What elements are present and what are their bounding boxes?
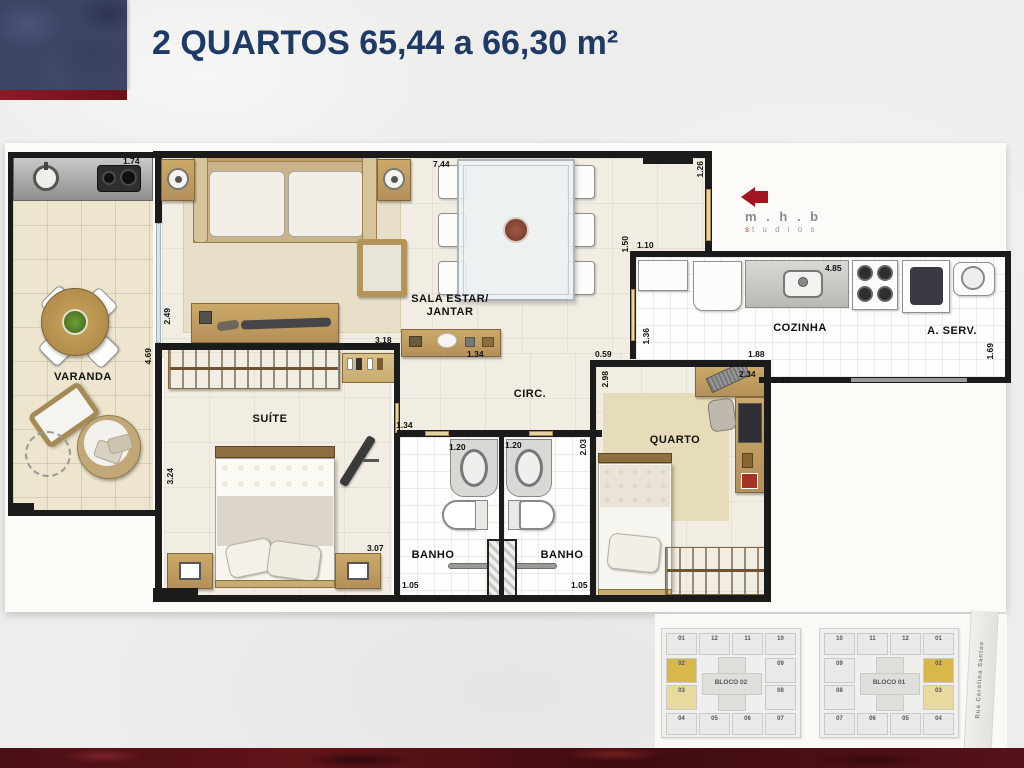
dim: 1.34 (467, 349, 484, 359)
decor-vase-icon (437, 333, 457, 348)
planter-outline-icon (25, 431, 71, 477)
decorative-red-strip (0, 90, 127, 100)
table-plant-icon (62, 309, 88, 335)
washer-drum (910, 267, 943, 305)
drain-icon (798, 277, 808, 287)
room-label-sala-1: SALA ESTAR/ (395, 293, 505, 305)
dim: 1.50 (620, 236, 630, 253)
unit-cell: 11 (732, 633, 763, 655)
service-window (851, 378, 967, 382)
shelf-item-red (741, 473, 758, 489)
dim: 1.05 (571, 580, 588, 590)
block-label: BLOCO 01 (820, 679, 958, 686)
dim: 2.97 (773, 375, 790, 385)
decorative-navy-square (0, 0, 127, 90)
wall (590, 365, 596, 600)
dim: 1.36 (641, 328, 651, 345)
logo-tag-rest: t u d i o s (752, 225, 817, 234)
room-label-varanda: VARANDA (33, 371, 133, 383)
dim: 1.20 (449, 442, 466, 452)
unit-cell: 03 (666, 685, 697, 710)
glass-door (156, 223, 161, 343)
shoe-icon (367, 358, 373, 370)
monitor-icon (738, 403, 762, 443)
page-title: 2 QUARTOS 65,44 a 66,30 m² (152, 24, 618, 63)
wall (394, 343, 400, 602)
wall (630, 251, 1011, 257)
unit-cell: 12 (890, 633, 921, 655)
decor-box (409, 336, 422, 347)
dim: 2.98 (600, 371, 610, 388)
dim: 2.03 (578, 439, 588, 456)
entry-arrow-icon (741, 187, 755, 207)
dim: 1.20 (505, 440, 522, 450)
dim: 3.07 (367, 543, 384, 553)
unit-cell: 07 (824, 713, 855, 735)
wall (155, 343, 162, 602)
nightstand-lamp (179, 562, 201, 580)
decor-box (465, 337, 475, 347)
dim: 7.44 (433, 159, 450, 169)
logo-tag-first: s (745, 225, 752, 234)
bed-headboard (598, 453, 672, 463)
unit-cell: 12 (699, 633, 730, 655)
toilet-tank (475, 500, 488, 530)
decor-box (482, 337, 494, 347)
tub-basin (961, 266, 985, 290)
dim: 1.34 (396, 420, 413, 430)
unit-cell: 05 (699, 713, 730, 735)
room-label-circ: CIRC. (495, 388, 565, 400)
dim: 4.69 (143, 348, 153, 365)
grill-burner-icon (102, 171, 116, 185)
key-plan-plates: 011211100405060702030908BLOCO 0210111201… (655, 614, 1007, 756)
wardrobe-rod (667, 569, 765, 572)
room-label-banho1: BANHO (403, 549, 463, 561)
sofa-arm (193, 155, 208, 243)
wall (8, 503, 34, 516)
footer-decorative-bar (0, 748, 1024, 768)
dim: 1.74 (123, 156, 140, 166)
dim: 3.24 (165, 468, 175, 485)
dim: 1.05 (402, 580, 419, 590)
room-label-suite: SUÍTE (220, 413, 320, 425)
room-label-cozinha: COZINHA (745, 322, 855, 334)
nightstand-lamp (347, 562, 369, 580)
unit-cell: 06 (857, 713, 888, 735)
wall (499, 437, 504, 595)
room-label-aserv: A. SERV. (907, 325, 997, 337)
dim: 1.88 (748, 349, 765, 359)
unit-cell: 08 (824, 685, 855, 710)
shelf-item (742, 453, 753, 468)
wall (590, 360, 770, 367)
faucet-icon (44, 162, 48, 170)
dim: 2.34 (739, 369, 756, 379)
pillow-icon (606, 532, 661, 573)
shoe-icon (356, 358, 362, 370)
closet-rod (170, 367, 338, 370)
burner-icon (857, 265, 873, 281)
dim: 1.26 (695, 161, 705, 178)
unit-cell: 01 (923, 633, 954, 655)
unit-cell: 11 (857, 633, 888, 655)
unit-cell: 07 (765, 713, 796, 735)
key-plan-minimap: 011211100405060702030908BLOCO 0210111201… (655, 614, 1007, 756)
tv-mount (363, 459, 379, 462)
unit-cell: 04 (923, 713, 954, 735)
unit-cell: 04 (666, 713, 697, 735)
pillow-icon (266, 540, 323, 583)
shoe-icon (377, 358, 383, 370)
wall (153, 151, 711, 158)
grill-burner-icon (120, 169, 137, 186)
floor-plan: VARANDA SALA ESTAR/ JANTAR CIRC. m . h .… (5, 143, 1006, 612)
sofa-arm (362, 155, 377, 243)
decor-box (199, 311, 212, 324)
key-plan-block: 011211100405060702030908BLOCO 02 (661, 628, 801, 738)
lamp-center (175, 176, 182, 183)
lamp-center (391, 176, 398, 183)
sofa-cushion (288, 171, 364, 237)
dim: 0.59 (595, 349, 612, 359)
burner-icon (877, 286, 893, 302)
block-label: BLOCO 02 (662, 679, 800, 686)
dim: 1.69 (985, 343, 995, 360)
wall (764, 360, 771, 600)
kitchen-door (631, 289, 635, 341)
sofa-cushion (209, 171, 285, 237)
banho2-door (529, 431, 553, 436)
unit-cell: 06 (732, 713, 763, 735)
unit-cell: 10 (765, 633, 796, 655)
bed-footboard (215, 580, 335, 588)
burner-icon (857, 286, 873, 302)
toilet-icon (519, 500, 555, 530)
bed-blanket (217, 460, 333, 496)
bed-headboard (215, 446, 335, 458)
unit-cell: 01 (666, 633, 697, 655)
kitchen-cabinet (693, 261, 742, 311)
studio-logo-name: m . h . b (745, 209, 821, 224)
dim: 2.49 (162, 308, 172, 325)
dim: 3.18 (375, 335, 392, 345)
bed-sheet (217, 496, 333, 546)
washbasin-icon (460, 449, 488, 487)
street-label: Rua Carolina Santos (975, 641, 985, 719)
banho1-door (425, 431, 449, 436)
room-label-quarto: QUARTO (630, 434, 720, 446)
entry-arrow-body (755, 191, 768, 203)
washbasin-icon (515, 449, 543, 487)
armchair-icon (357, 239, 407, 297)
wall (1005, 251, 1011, 383)
wall (155, 343, 400, 350)
toilet-icon (442, 500, 478, 530)
shoe-icon (347, 358, 353, 370)
room-label-sala-2: JANTAR (395, 306, 505, 318)
wall (643, 151, 693, 164)
room-label-banho2: BANHO (532, 549, 592, 561)
unit-cell: 08 (765, 685, 796, 710)
centerpiece-icon (503, 217, 529, 243)
entry-door (706, 189, 711, 241)
bed-blanket (600, 465, 670, 507)
wall (8, 152, 13, 515)
studio-logo-tagline: st u d i o s (745, 225, 817, 234)
unit-cell: 03 (923, 685, 954, 710)
key-plan-block: 101112010706050409080203BLOCO 01 (819, 628, 959, 738)
presentation-slide: { "title": "2 QUARTOS 65,44 a 66,30 m²",… (0, 0, 1024, 768)
dim: 4.85 (825, 263, 842, 273)
unit-cell: 05 (890, 713, 921, 735)
fridge-icon (638, 260, 688, 291)
burner-icon (877, 265, 893, 281)
wall (153, 595, 771, 602)
unit-cell: 10 (824, 633, 855, 655)
dim: 1.10 (637, 240, 654, 250)
desk-chair-icon (707, 397, 737, 432)
